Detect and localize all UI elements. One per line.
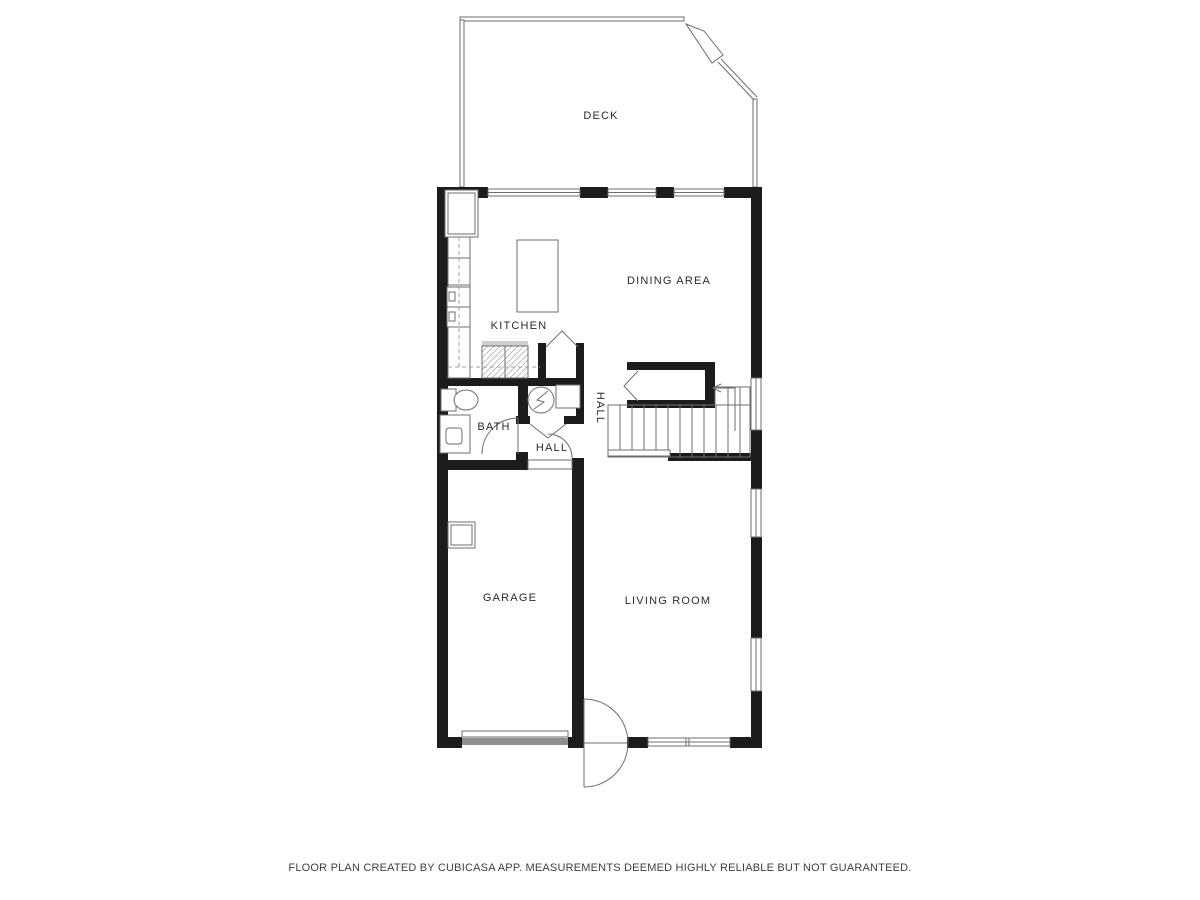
room-label-hall: HALL	[536, 442, 568, 454]
utility-box-icon	[448, 522, 475, 548]
room-label-hall-vertical: HALL	[594, 392, 606, 424]
stove-icon	[482, 341, 528, 378]
room-label-bath: BATH	[477, 421, 510, 433]
wall-segment	[576, 343, 584, 424]
window	[608, 189, 656, 196]
garage-door	[462, 731, 568, 745]
wall-segment	[580, 187, 608, 198]
front-door-arc	[584, 699, 628, 787]
wall-segment	[538, 343, 546, 378]
wall-segment	[627, 362, 715, 370]
room-label-garage: GARAGE	[483, 592, 537, 604]
wall-segment	[572, 458, 584, 737]
wall-segment	[564, 416, 584, 424]
stairs	[608, 384, 750, 457]
wall-segment	[656, 187, 674, 198]
fridge-icon	[445, 190, 478, 237]
bathroom-sink-icon	[440, 415, 470, 453]
wall-segment	[437, 737, 462, 748]
wall-segment	[627, 737, 648, 748]
deck-gate-icon	[686, 24, 723, 63]
room-label-deck: DECK	[583, 110, 618, 122]
window	[488, 189, 580, 196]
wall-segment	[751, 187, 762, 378]
kitchen-island	[517, 240, 558, 312]
window	[751, 638, 761, 691]
pantry-door-icon	[546, 331, 578, 347]
floor-plan-drawing	[0, 0, 1200, 900]
closet-bifold-door-icon	[530, 424, 566, 438]
wall-segment	[516, 452, 528, 470]
stair-closet-door-icon	[624, 371, 638, 401]
wall-segment	[627, 400, 715, 408]
water-heater-icon	[528, 387, 554, 413]
window	[751, 378, 761, 430]
wall-segment	[568, 737, 584, 748]
room-label-living-room: LIVING ROOM	[625, 595, 712, 607]
wall-segment	[751, 537, 762, 638]
wall-segment	[730, 737, 762, 748]
room-label-kitchen: KITCHEN	[491, 320, 548, 332]
window	[674, 189, 724, 196]
toilet-icon	[441, 389, 478, 411]
disclaimer-text: FLOOR PLAN CREATED BY CUBICASA APP. MEAS…	[0, 862, 1200, 874]
stair-rail	[608, 450, 670, 456]
window	[648, 738, 730, 746]
bath-fixtures	[440, 389, 478, 453]
window	[751, 489, 761, 537]
room-label-dining-area: DINING AREA	[627, 275, 711, 287]
wall-segment	[437, 460, 520, 470]
wall-segment	[518, 386, 528, 418]
laundry-box-icon	[556, 385, 580, 408]
garage-door-threshold	[528, 460, 572, 469]
floor-plan-canvas: DECK DINING AREA KITCHEN BATH HALL HALL …	[0, 0, 1200, 900]
